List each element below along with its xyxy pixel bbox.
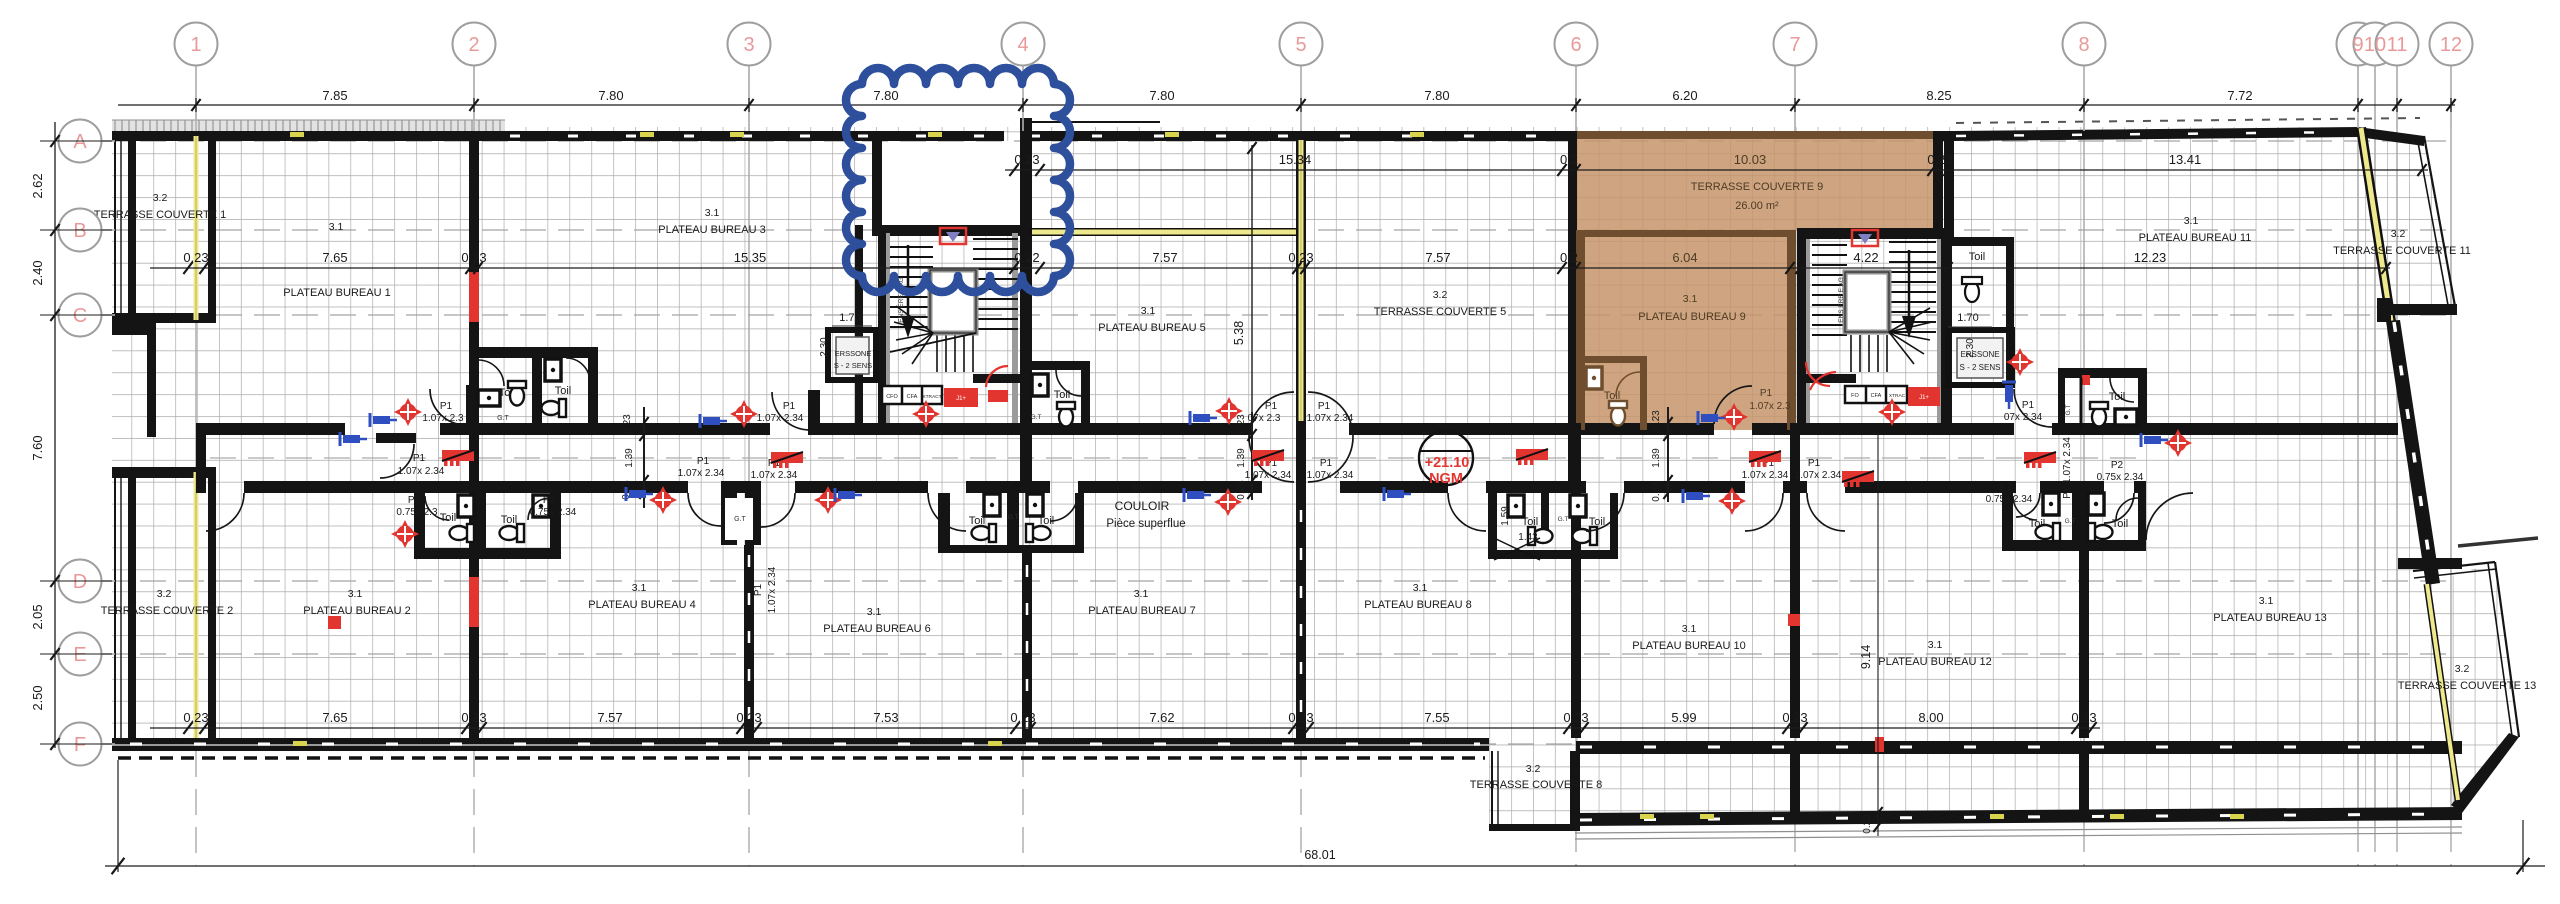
- svg-text:68.01: 68.01: [1304, 848, 1335, 862]
- svg-text:9.14: 9.14: [1859, 645, 1873, 669]
- svg-text:0.75x 2.34: 0.75x 2.34: [530, 507, 577, 518]
- svg-text:0.23: 0.23: [461, 250, 486, 265]
- svg-text:5: 5: [1295, 34, 1306, 56]
- svg-text:0.23: 0.23: [1236, 480, 1247, 500]
- svg-text:CFO: CFO: [886, 394, 898, 400]
- svg-text:TERRASSE COUVERTE 11: TERRASSE COUVERTE 11: [2333, 245, 2471, 257]
- svg-text:7.80: 7.80: [1424, 88, 1449, 103]
- svg-text:PLATEAU BUREAU 12: PLATEAU BUREAU 12: [1878, 656, 1992, 668]
- svg-text:A: A: [73, 131, 87, 153]
- svg-text:S - 2 SENS: S - 2 SENS: [834, 361, 872, 370]
- svg-text:G.T: G.T: [734, 516, 746, 523]
- svg-text:TERRASSE COUVERTE 9: TERRASSE COUVERTE 9: [1691, 181, 1823, 193]
- svg-text:0.23: 0.23: [1862, 814, 1873, 834]
- svg-text:3.2: 3.2: [157, 588, 172, 600]
- svg-text:0.2: 0.2: [1560, 250, 1578, 265]
- svg-text:0.23: 0.23: [1236, 414, 1247, 434]
- svg-text:2.30: 2.30: [1965, 338, 1976, 358]
- svg-text:Toil: Toil: [1969, 251, 1986, 263]
- svg-text:9: 9: [2352, 34, 2363, 56]
- svg-text:0.23: 0.23: [622, 414, 633, 434]
- svg-text:0.23: 0.23: [1651, 482, 1662, 502]
- svg-text:PLATEAU BUREAU 11: PLATEAU BUREAU 11: [2139, 232, 2252, 244]
- svg-text:4: 4: [1017, 34, 1028, 56]
- svg-text:7.80: 7.80: [598, 88, 623, 103]
- svg-text:PLATEAU BUREAU 3: PLATEAU BUREAU 3: [658, 224, 765, 236]
- svg-text:5.38: 5.38: [1232, 321, 1246, 345]
- svg-text:Toil: Toil: [2109, 391, 2126, 403]
- svg-text:1.07x 2.34: 1.07x 2.34: [678, 468, 725, 479]
- svg-text:7.57: 7.57: [1152, 250, 1177, 265]
- svg-text:3.1: 3.1: [329, 221, 344, 233]
- svg-text:7.72: 7.72: [2227, 88, 2252, 103]
- svg-text:PLATEAU BUREAU 4: PLATEAU BUREAU 4: [588, 599, 695, 611]
- svg-text:8.00: 8.00: [1918, 710, 1943, 725]
- svg-text:Toil: Toil: [2112, 518, 2129, 530]
- svg-text:07x 2.34: 07x 2.34: [2004, 412, 2043, 423]
- svg-text:0.23: 0.23: [461, 710, 486, 725]
- svg-text:P1 1.07x 2.34: P1 1.07x 2.34: [2062, 437, 2073, 499]
- svg-text:C: C: [73, 305, 87, 327]
- svg-text:P1: P1: [413, 453, 426, 464]
- svg-text:B: B: [73, 220, 86, 242]
- svg-text:P1: P1: [697, 456, 710, 467]
- svg-text:P1: P1: [1760, 388, 1773, 399]
- svg-text:4.22: 4.22: [1853, 250, 1878, 265]
- svg-text:0.23: 0.23: [183, 710, 208, 725]
- svg-text:3.1: 3.1: [1141, 305, 1156, 317]
- svg-text:P1: P1: [1808, 458, 1821, 469]
- svg-text:3: 3: [743, 34, 754, 56]
- svg-text:0.75x 2.34: 0.75x 2.34: [2097, 472, 2144, 483]
- svg-text:PLATEAU BUREAU 2: PLATEAU BUREAU 2: [303, 605, 410, 617]
- svg-text:1: 1: [190, 34, 201, 56]
- svg-text:1.07x 2.34: 1.07x 2.34: [1307, 413, 1354, 424]
- svg-text:12.23: 12.23: [2134, 250, 2167, 265]
- svg-text:3.1: 3.1: [705, 207, 720, 219]
- svg-text:1.43: 1.43: [1518, 532, 1538, 543]
- svg-text:Pièce superflue: Pièce superflue: [1106, 518, 1185, 530]
- svg-text:G.T: G.T: [1031, 414, 1042, 421]
- svg-text:3.2: 3.2: [1526, 763, 1541, 775]
- svg-text:3.1: 3.1: [1682, 623, 1697, 635]
- svg-text:3.1: 3.1: [1928, 639, 1943, 651]
- svg-text:26.00 m²: 26.00 m²: [1735, 200, 1779, 212]
- svg-text:1.70: 1.70: [1957, 312, 1978, 324]
- svg-text:P1: P1: [1320, 458, 1333, 469]
- svg-text:Toil: Toil: [440, 512, 457, 524]
- svg-text:F: F: [74, 734, 86, 756]
- svg-text:3.1: 3.1: [2184, 215, 2199, 227]
- svg-text:J1+: J1+: [956, 396, 966, 402]
- svg-text:1.07x 2.34: 1.07x 2.34: [751, 470, 798, 481]
- svg-text:TERRASSE COUVERTE 5: TERRASSE COUVERTE 5: [1374, 306, 1506, 318]
- svg-text:12: 12: [2440, 34, 2462, 56]
- svg-text:6: 6: [1570, 34, 1581, 56]
- svg-text:P1: P1: [440, 401, 453, 412]
- svg-text:7.55: 7.55: [1424, 710, 1449, 725]
- svg-text:1.70: 1.70: [839, 312, 860, 324]
- svg-text:1.07x 2.3: 1.07x 2.3: [422, 413, 464, 424]
- svg-text:3.2: 3.2: [1433, 289, 1448, 301]
- svg-text:TERRASSE COUVERTE 1: TERRASSE COUVERTE 1: [94, 209, 226, 221]
- svg-text:7.65: 7.65: [322, 710, 347, 725]
- svg-text:7: 7: [1789, 34, 1800, 56]
- svg-text:XTRAC: XTRAC: [1889, 393, 1906, 399]
- svg-text:2.50: 2.50: [30, 685, 45, 710]
- svg-text:0001: 0001: [1131, 484, 1154, 495]
- svg-text:1.07x 2.34: 1.07x 2.34: [757, 413, 804, 424]
- svg-text:3.1: 3.1: [1134, 588, 1149, 600]
- svg-text:15.34: 15.34: [1279, 152, 1312, 167]
- svg-text:G.T: G.T: [2065, 518, 2076, 525]
- svg-text:7.80: 7.80: [1149, 88, 1174, 103]
- svg-text:0.23: 0.23: [1927, 152, 1952, 167]
- svg-text:15.35: 15.35: [734, 250, 767, 265]
- svg-text:10.03: 10.03: [1734, 152, 1767, 167]
- svg-text:7.60: 7.60: [30, 435, 45, 460]
- svg-text:0.23: 0.23: [183, 250, 208, 265]
- svg-text:2: 2: [468, 34, 479, 56]
- svg-text:CFA: CFA: [907, 394, 918, 400]
- svg-text:P2: P2: [543, 495, 556, 506]
- svg-text:0.2: 0.2: [1560, 152, 1578, 167]
- svg-text:7.85: 7.85: [322, 88, 347, 103]
- svg-text:Toil: Toil: [1054, 389, 1071, 401]
- svg-text:J1+: J1+: [1919, 395, 1929, 401]
- svg-text:0.22: 0.22: [1014, 250, 1039, 265]
- svg-text:1.39: 1.39: [624, 448, 635, 468]
- svg-text:G.T: G.T: [497, 415, 509, 422]
- svg-text:P1: P1: [1318, 401, 1331, 412]
- svg-text:0.75x 2.3: 0.75x 2.3: [396, 507, 438, 518]
- svg-text:1.39: 1.39: [1236, 448, 1247, 468]
- svg-text:7.57: 7.57: [597, 710, 622, 725]
- svg-text:0.23: 0.23: [1288, 250, 1313, 265]
- svg-text:5.99: 5.99: [1671, 710, 1696, 725]
- svg-text:3.2: 3.2: [153, 192, 168, 204]
- svg-text:0.23: 0.23: [1288, 710, 1313, 725]
- svg-text:3.2: 3.2: [2455, 663, 2470, 675]
- svg-text:P1: P1: [783, 401, 796, 412]
- svg-text:PLATEAU BUREAU 5: PLATEAU BUREAU 5: [1098, 322, 1205, 334]
- svg-text:G.T: G.T: [1008, 514, 1019, 521]
- svg-text:P1: P1: [2022, 400, 2035, 411]
- svg-text:8.25: 8.25: [1926, 88, 1951, 103]
- svg-text:2.05: 2.05: [30, 604, 45, 629]
- svg-text:P2: P2: [408, 495, 421, 506]
- svg-text:3.1: 3.1: [1413, 582, 1428, 594]
- svg-text:6.20: 6.20: [1672, 88, 1697, 103]
- svg-text:3.1: 3.1: [867, 606, 882, 618]
- svg-text:CFA: CFA: [1871, 393, 1882, 399]
- svg-text:FO: FO: [1851, 393, 1859, 399]
- svg-text:1.07x 2.34: 1.07x 2.34: [398, 466, 445, 477]
- svg-text:0.23: 0.23: [736, 710, 761, 725]
- svg-text:7.57: 7.57: [1425, 250, 1450, 265]
- svg-text:XTRACT: XTRACT: [922, 394, 941, 400]
- svg-text:P1: P1: [753, 583, 764, 596]
- svg-text:1.07x 2.34: 1.07x 2.34: [1742, 470, 1789, 481]
- svg-text:P2: P2: [2111, 460, 2124, 471]
- svg-text:P1: P1: [1265, 401, 1278, 412]
- svg-text:3.1: 3.1: [632, 582, 647, 594]
- svg-text:3.1: 3.1: [1683, 293, 1698, 305]
- svg-text:1.07x 2.34: 1.07x 2.34: [1307, 470, 1354, 481]
- svg-text:PLATEAU BUREAU 10: PLATEAU BUREAU 10: [1632, 640, 1746, 652]
- svg-text:PLATEAU BUREAU 7: PLATEAU BUREAU 7: [1088, 605, 1195, 617]
- svg-text:PLATEAU BUREAU 9: PLATEAU BUREAU 9: [1638, 311, 1745, 323]
- svg-text:PLATEAU BUREAU 13: PLATEAU BUREAU 13: [2213, 612, 2327, 624]
- svg-text:0.23: 0.23: [1563, 710, 1588, 725]
- svg-text:7.80: 7.80: [873, 88, 898, 103]
- svg-text:D: D: [73, 571, 87, 593]
- svg-text:TERRASSE COUVERTE 13: TERRASSE COUVERTE 13: [2398, 680, 2537, 692]
- svg-text:3.1: 3.1: [2259, 595, 2274, 607]
- svg-text:NGM: NGM: [1429, 471, 1463, 487]
- svg-text:6.04: 6.04: [1672, 250, 1697, 265]
- svg-text:1.07x 2.34: 1.07x 2.34: [1795, 470, 1842, 481]
- svg-text:1.07x 2.34: 1.07x 2.34: [767, 566, 778, 613]
- svg-text:PLATEAU BUREAU 6: PLATEAU BUREAU 6: [823, 623, 930, 635]
- svg-text:ENS ERE E AG: ENS ERE E AG: [1838, 277, 1845, 323]
- svg-text:7.53: 7.53: [873, 710, 898, 725]
- svg-text:0.75x 2.34: 0.75x 2.34: [1986, 494, 2033, 505]
- svg-text:PLATEAU BUREAU 8: PLATEAU BUREAU 8: [1364, 599, 1471, 611]
- svg-text:G.T: G.T: [1558, 516, 1569, 523]
- svg-text:0.23: 0.23: [1010, 710, 1035, 725]
- svg-text:0.23: 0.23: [1014, 152, 1039, 167]
- svg-text:Toil: Toil: [555, 385, 572, 397]
- svg-text:Toil: Toil: [501, 514, 518, 526]
- svg-text:2.40: 2.40: [30, 260, 45, 285]
- svg-text:S - 2 SENS: S - 2 SENS: [1960, 363, 2001, 372]
- svg-text:2.30: 2.30: [819, 337, 830, 357]
- svg-text:ERSSONE: ERSSONE: [835, 349, 872, 358]
- svg-text:13.41: 13.41: [2169, 152, 2202, 167]
- svg-text:0.23: 0.23: [2071, 710, 2096, 725]
- svg-text:10: 10: [2364, 34, 2386, 56]
- svg-text:1.59: 1.59: [1500, 506, 1511, 526]
- svg-text:7.65: 7.65: [322, 250, 347, 265]
- svg-text:8: 8: [2078, 34, 2089, 56]
- svg-text:7.62: 7.62: [1149, 710, 1174, 725]
- svg-text:1.07x 2.34: 1.07x 2.34: [1245, 470, 1292, 481]
- svg-text:PLATEAU BUREAU 1: PLATEAU BUREAU 1: [283, 287, 390, 299]
- svg-text:3.1: 3.1: [348, 588, 363, 600]
- svg-text:TERRASSE COUVERTE 8: TERRASSE COUVERTE 8: [1470, 779, 1602, 791]
- svg-text:11: 11: [2387, 34, 2408, 56]
- svg-text:P2: P2: [2000, 482, 2013, 493]
- svg-text:3.2: 3.2: [2391, 228, 2406, 240]
- svg-text:+21.10: +21.10: [1425, 455, 1470, 471]
- svg-text:1.07x 2.3: 1.07x 2.3: [1749, 401, 1791, 412]
- svg-text:1.39: 1.39: [1651, 448, 1662, 468]
- svg-text:0.23: 0.23: [1782, 710, 1807, 725]
- svg-text:07x 2.3: 07x 2.3: [1248, 413, 1281, 424]
- svg-text:2.62: 2.62: [30, 173, 45, 198]
- svg-text:E: E: [73, 644, 86, 666]
- svg-text:G.T: G.T: [2065, 405, 2072, 416]
- svg-text:0.23: 0.23: [1651, 410, 1662, 430]
- svg-text:TERRASSE COUVERTE 2: TERRASSE COUVERTE 2: [101, 605, 233, 617]
- svg-text:COULOIR: COULOIR: [1115, 499, 1170, 513]
